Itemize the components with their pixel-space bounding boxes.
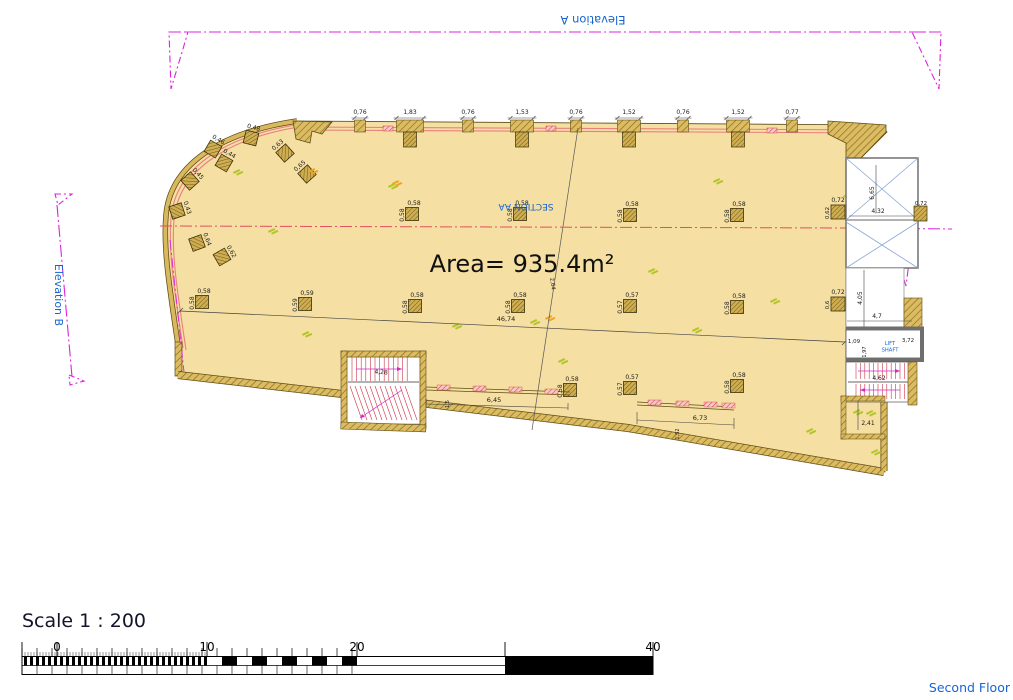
scale-tick-label: 10: [199, 640, 214, 654]
scale-bar: Scale 1 : 200 0102040: [22, 610, 661, 675]
top-dim-label: 0,76: [461, 109, 475, 116]
lift-label-1: LIFT: [885, 341, 896, 347]
column-dim-label: 0,58: [197, 288, 211, 295]
railing-panel: [676, 401, 689, 406]
wall-column-dim-vert: 0,62: [825, 207, 831, 219]
left-stair-enclosure: 4,28: [341, 351, 426, 432]
elevation-b-label: Elevation B: [52, 264, 65, 326]
column-dim-label-vert: 0,57: [617, 382, 624, 396]
column-marker: [409, 300, 422, 313]
column-dim-label-vert: 0,58: [724, 209, 731, 223]
column-dim-label: 0,58: [407, 200, 421, 207]
wall-column-marker: [831, 205, 845, 219]
column-marker: [624, 382, 637, 395]
column-dim-label: 0,57: [625, 374, 639, 381]
railing-panel: [722, 403, 735, 408]
scale-block: [342, 657, 357, 666]
railing-panel: [704, 402, 717, 407]
right-stair-dim: 4,62: [872, 375, 886, 382]
section-label: SECTION AA: [498, 201, 554, 211]
column-marker: [624, 300, 637, 313]
top-dim-label: 0,77: [785, 109, 799, 116]
wall-pier-small: [355, 120, 366, 132]
shaft-width-dim: 4,32: [871, 208, 885, 215]
elevation-b-bottom-arrow: [69, 375, 84, 385]
main-floor-plan: 0,761,830,761,530,761,520,761,520,77 0,5…: [160, 109, 952, 472]
lift-left-dim: 1,09: [848, 339, 861, 345]
scale-block: [252, 657, 267, 666]
wall-pier-small: [787, 120, 798, 132]
wall-column-dim: 0,72: [831, 289, 845, 296]
wall-pier-stem: [623, 132, 636, 147]
lift-width-dim: 3,72: [902, 338, 914, 344]
column-dim-label: 0,58: [565, 376, 579, 383]
scale-block: [282, 657, 297, 666]
column-dim-label: 0,58: [732, 372, 746, 379]
column-dim-label: 0,58: [732, 201, 746, 208]
door-detail: [546, 126, 556, 131]
column-dim-label: 0,58: [732, 293, 746, 300]
column-dim-label-vert: 0,58: [505, 300, 512, 314]
railing-panel: [437, 385, 450, 390]
column-dim-label-vert: 0,57: [617, 300, 624, 314]
left-stair-dim: 4,28: [374, 369, 388, 377]
shaft-height-dim: 6,65: [869, 186, 876, 200]
door-detail: [383, 126, 393, 131]
column-dim-label-vert: 0,58: [189, 296, 196, 310]
scale-bar-graphic: [22, 642, 653, 675]
wall-pier-wide: [511, 120, 534, 132]
top-dim-label: 0,76: [569, 109, 583, 116]
column-marker: [243, 130, 259, 146]
column-marker: [731, 209, 744, 222]
column-dim-label: 0,58: [625, 201, 639, 208]
scale-block: [312, 657, 327, 666]
elevation-b-top-arrow: [55, 194, 72, 205]
railing-panel: [545, 389, 558, 394]
scale-fine-segment: [22, 657, 207, 666]
lift-shaft-room: LIFT SHAFT 3,72 1,09 1,97: [846, 327, 924, 363]
elevation-a-label: Elevation A: [560, 13, 625, 27]
column-dim-label-vert: 0,58: [724, 301, 731, 315]
wall-column-dim-vert: 0,6: [825, 300, 831, 309]
top-dim-label: 1,52: [622, 109, 636, 116]
column-dim-label-vert: 0,58: [402, 300, 409, 314]
wall-column-dim: 0,72: [831, 197, 845, 204]
shaft-right-dim: 0,72: [915, 201, 927, 207]
scale-title: Scale 1 : 200: [22, 610, 146, 632]
floor-label: Second Floor: [929, 680, 1011, 695]
wall-pier-stem: [404, 132, 417, 147]
column-dim-label-vert: 0,59: [292, 298, 299, 312]
left-wall: [175, 342, 182, 376]
scale-block: [505, 657, 653, 666]
railing-1-dim: 6,45: [487, 396, 501, 404]
scale-block: [505, 666, 653, 675]
top-dim-label: 0,76: [676, 109, 690, 116]
corridor-wall: [904, 298, 922, 328]
door-detail: [767, 128, 777, 133]
room-241-dim: 2,41: [861, 420, 875, 427]
railing-2-dim: 6,73: [693, 414, 707, 422]
wall-pier-wide: [397, 120, 424, 132]
wall-pier-wide: [618, 120, 641, 132]
column-dim-label-vert: 0,58: [724, 380, 731, 394]
wall-pier-stem: [516, 132, 529, 147]
scale-tick-label: 0: [53, 640, 61, 654]
railing-1-subdim: 1,5: [445, 400, 451, 408]
column-dim-label: 0,58: [410, 292, 424, 299]
elevation-a-marker: [169, 32, 941, 89]
page: Elevation A Elevation B 0,761,830,761,53…: [0, 0, 1013, 700]
floor-plan-canvas: Elevation A Elevation B 0,761,830,761,53…: [0, 0, 1013, 700]
shaft-right-pier: [914, 206, 927, 221]
corridor-width-dim: 4,7: [872, 313, 882, 320]
elevation-a-left-arrow: [169, 32, 188, 89]
scale-tick-label: 20: [349, 640, 364, 654]
area-label: Area= 935.4m²: [430, 250, 615, 278]
wall-pier-wide: [727, 120, 750, 132]
column-dim-label-vert: 0,58: [399, 208, 406, 222]
top-dim-label: 0,76: [353, 109, 367, 116]
column-marker: [731, 301, 744, 314]
railing-2-subdim: 1,52: [675, 428, 681, 439]
elevation-a-right-arrow: [912, 32, 941, 89]
wall-pier-stem: [732, 132, 745, 147]
top-dim-label: 1,53: [515, 109, 529, 116]
right-core-rooms: 6,65 4,32 0,72 4,05 4,7 LIFT SHAFT 3,72 …: [841, 158, 927, 439]
wall-pier-small: [571, 120, 582, 132]
column-marker: [196, 296, 209, 309]
railing-panel: [473, 386, 486, 391]
lift-label-2: SHAFT: [882, 348, 900, 354]
column-dim-label: 0,59: [300, 290, 314, 297]
column-dim-label-vert: 0,58: [617, 209, 624, 223]
scale-bar-labels: 0102040: [53, 640, 660, 654]
railing-panel: [648, 400, 661, 405]
wall-pier-small: [463, 120, 474, 132]
scale-block: [222, 657, 237, 666]
top-dim-label: 1,52: [731, 109, 745, 116]
overall-dim-label: 46,74: [497, 315, 516, 323]
corridor-height-dim: 4,05: [857, 291, 864, 305]
column-marker: [731, 380, 744, 393]
column-marker: [512, 300, 525, 313]
wall-pier-small: [678, 120, 689, 132]
wall-column-marker: [831, 297, 845, 311]
top-dim-label: 1,83: [403, 109, 417, 116]
column-marker: [299, 298, 312, 311]
column-dim-label: 0,57: [625, 292, 639, 299]
column-marker: [406, 208, 419, 221]
column-marker: [624, 209, 637, 222]
railing-panel: [509, 387, 522, 392]
lift-depth-dim: 1,97: [862, 346, 868, 357]
scale-tick-label: 40: [645, 640, 660, 654]
column-dim-label: 0,58: [513, 292, 527, 299]
